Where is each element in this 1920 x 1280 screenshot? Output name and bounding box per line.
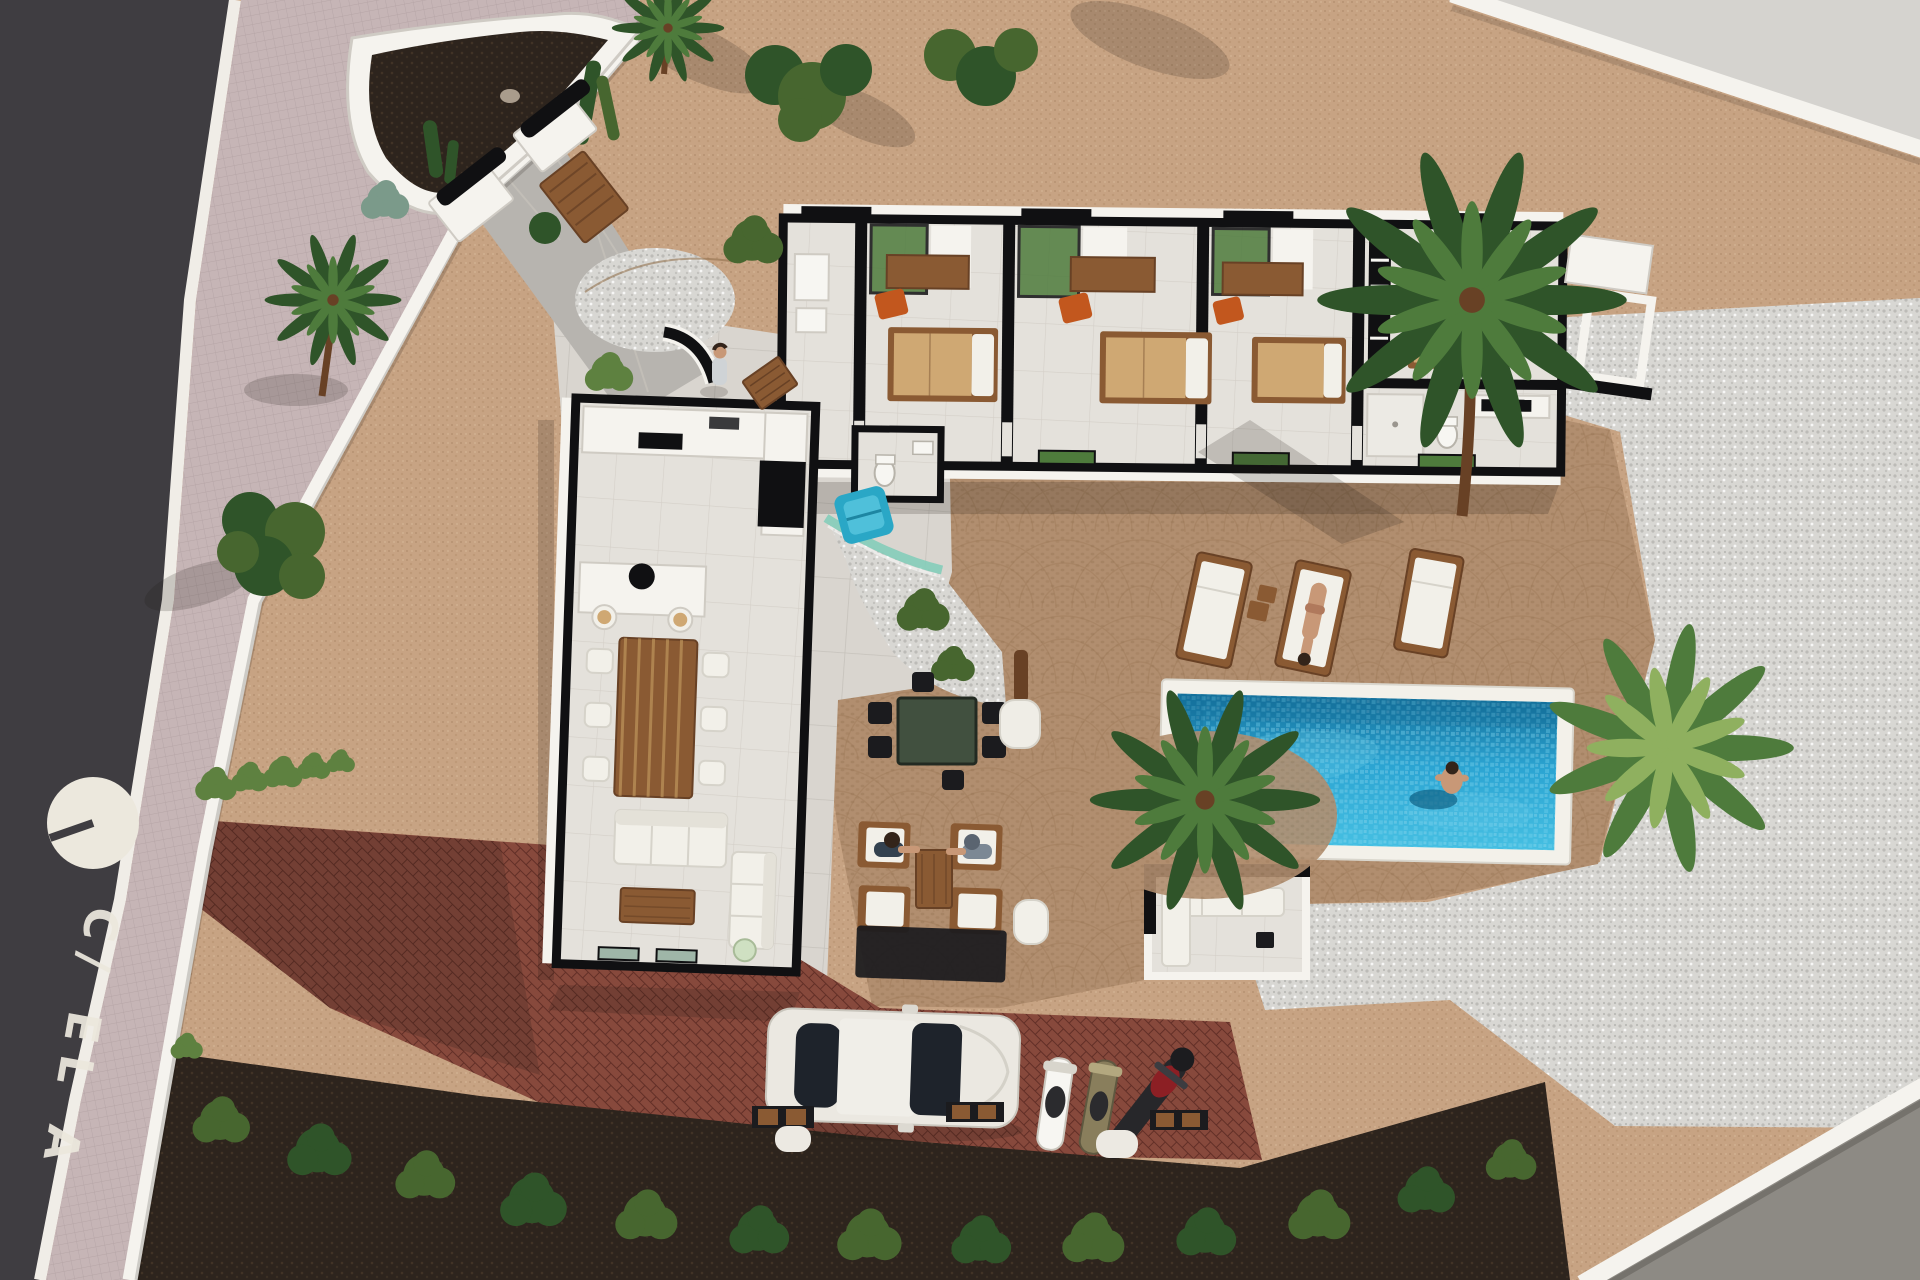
car-roof — [836, 1018, 917, 1117]
bed — [887, 327, 998, 402]
step-block-2 — [946, 1102, 1004, 1122]
rear-window — [794, 1023, 843, 1109]
bar-stool-2 — [668, 607, 693, 632]
white-bollard-stone-2 — [1096, 1130, 1138, 1158]
round-cactus — [529, 212, 561, 244]
white-pouf — [1014, 900, 1048, 944]
cube-side-table — [1256, 932, 1274, 948]
basin — [913, 441, 933, 454]
desk — [1223, 263, 1303, 296]
road-marking-circle — [47, 777, 139, 869]
desk — [1071, 257, 1155, 292]
round-pouf — [1000, 700, 1040, 748]
appliance-2 — [796, 308, 826, 332]
potted-plant — [733, 939, 756, 962]
appliance — [794, 254, 828, 300]
sofa-vertical — [729, 852, 776, 949]
fridge-wardrobe — [758, 460, 806, 528]
entrance-ensemble — [348, 13, 640, 244]
render-canvas: C/ EL A — [0, 0, 1920, 1280]
white-bollard-stone-1 — [775, 1126, 811, 1152]
desk — [887, 255, 969, 289]
step-block-1 — [752, 1106, 814, 1128]
mirror-left — [902, 1004, 918, 1014]
shade-canopy — [855, 925, 1007, 982]
coffee-table — [620, 888, 695, 925]
folded-parasol — [1014, 650, 1028, 702]
dining-area — [582, 637, 729, 800]
outdoor-table — [898, 698, 976, 764]
step-block-3 — [1150, 1110, 1208, 1130]
villa-aerial-render: C/ EL A — [0, 0, 1920, 1280]
counter-appliance — [709, 417, 739, 430]
dining-table — [614, 638, 697, 799]
sofa-horizontal — [614, 810, 728, 868]
bed — [1099, 331, 1212, 404]
mirror-right — [898, 1123, 914, 1133]
cooktop — [638, 432, 683, 450]
bed — [1251, 337, 1346, 404]
wooden-side-table — [916, 850, 952, 908]
bar-stool-1 — [592, 605, 617, 630]
utility-room — [794, 254, 829, 332]
living-wing — [542, 397, 816, 972]
